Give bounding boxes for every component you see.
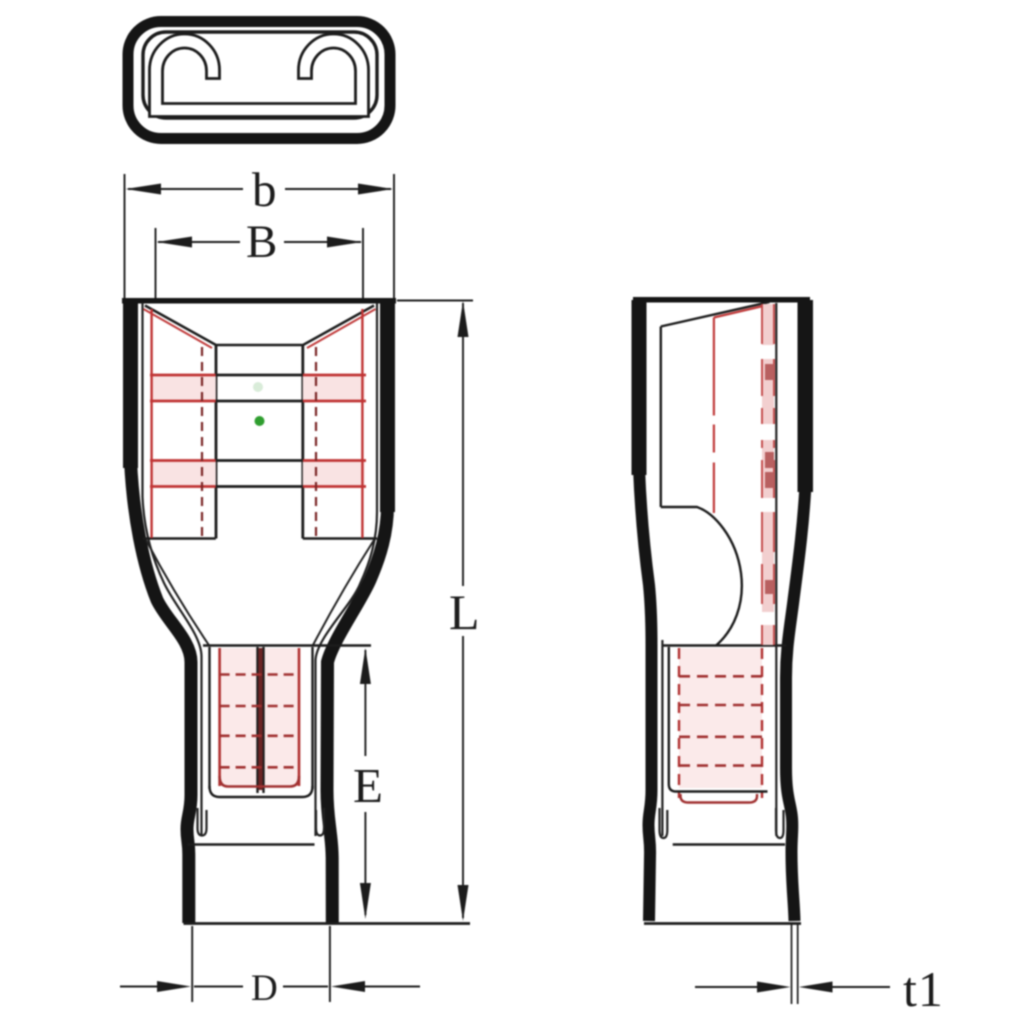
svg-text:b: b <box>252 162 277 217</box>
svg-text:t1: t1 <box>903 961 944 1017</box>
svg-text:D: D <box>251 968 278 1009</box>
svg-text:B: B <box>246 216 277 268</box>
svg-text:E: E <box>353 758 383 813</box>
svg-text:L: L <box>449 584 480 640</box>
